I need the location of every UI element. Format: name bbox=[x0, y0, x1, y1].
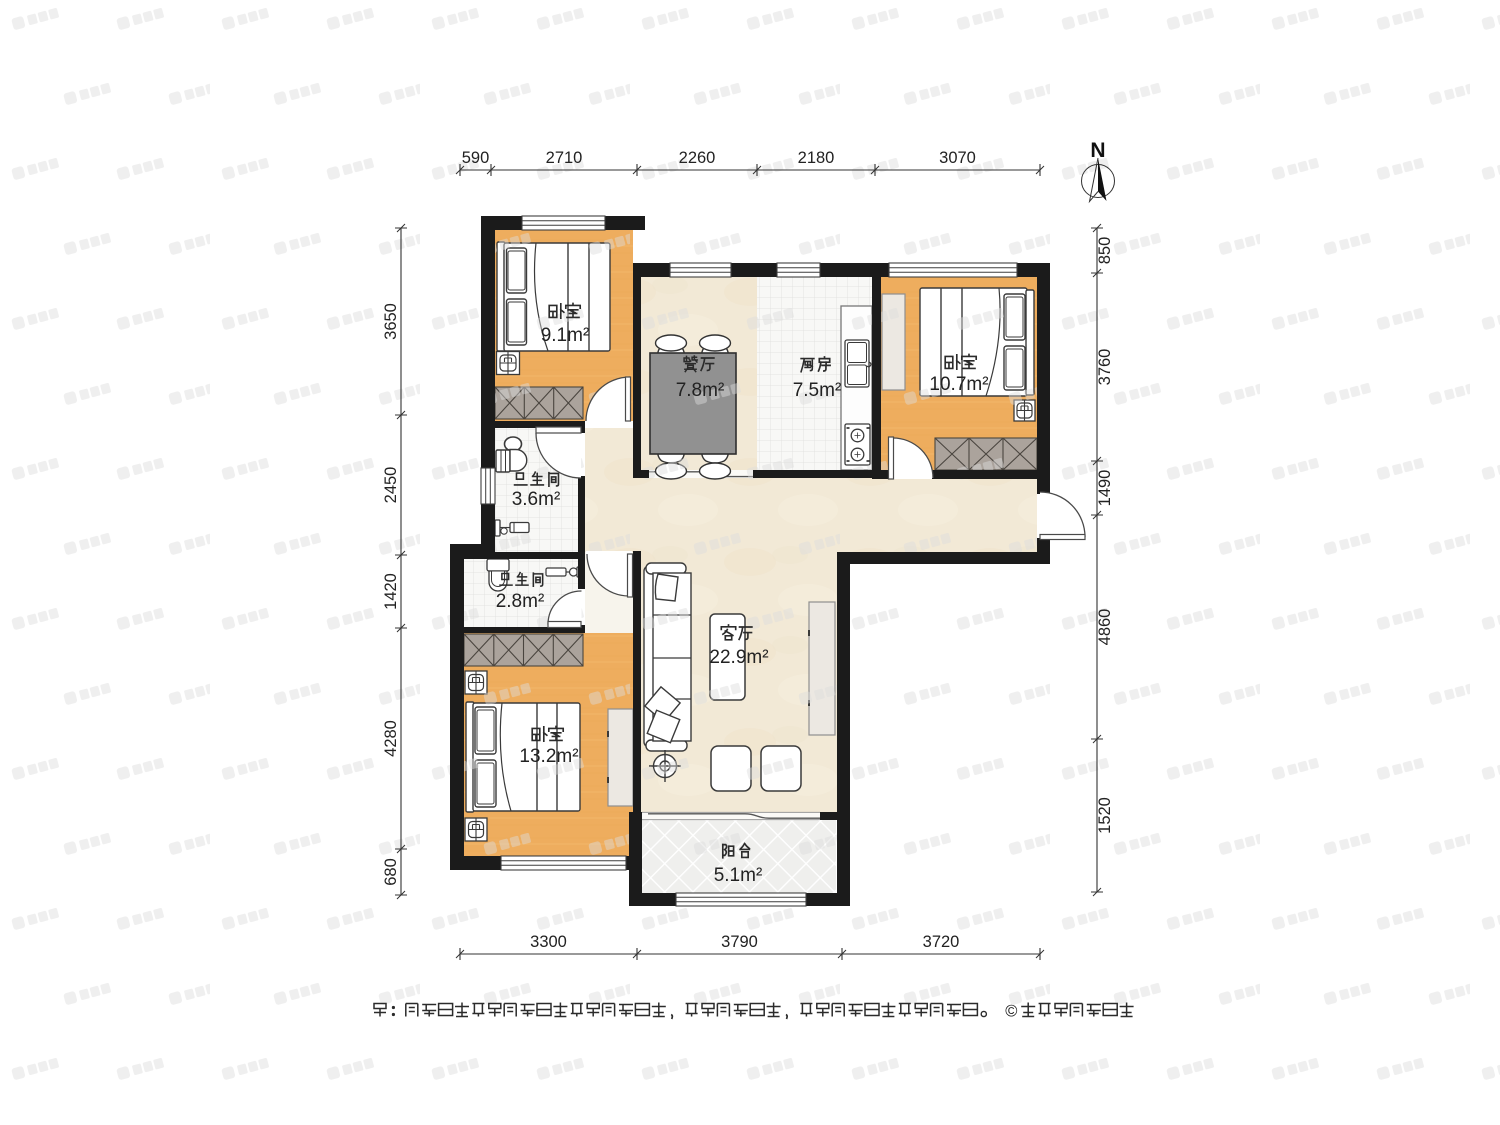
svg-text:22.9m²: 22.9m² bbox=[709, 647, 768, 668]
svg-text:3300: 3300 bbox=[530, 933, 567, 951]
svg-text:1490: 1490 bbox=[1096, 470, 1114, 507]
svg-text:1520: 1520 bbox=[1096, 797, 1114, 834]
svg-text:2710: 2710 bbox=[546, 149, 583, 167]
svg-text:4280: 4280 bbox=[382, 720, 400, 757]
svg-text:7.8m²: 7.8m² bbox=[676, 380, 725, 401]
svg-text:2260: 2260 bbox=[679, 149, 716, 167]
svg-text:7.5m²: 7.5m² bbox=[793, 380, 842, 401]
svg-text:3650: 3650 bbox=[382, 303, 400, 340]
svg-text:2450: 2450 bbox=[382, 467, 400, 504]
svg-text:13.2m²: 13.2m² bbox=[519, 746, 578, 767]
svg-text:680: 680 bbox=[382, 858, 400, 886]
svg-text:2.8m²: 2.8m² bbox=[496, 591, 545, 612]
svg-text:©: © bbox=[1005, 1003, 1017, 1021]
svg-text:4860: 4860 bbox=[1096, 609, 1114, 646]
svg-text:3790: 3790 bbox=[721, 933, 758, 951]
svg-text:9.1m²: 9.1m² bbox=[541, 325, 590, 346]
svg-text:3.6m²: 3.6m² bbox=[512, 489, 561, 510]
svg-text:1420: 1420 bbox=[382, 573, 400, 610]
svg-text:3720: 3720 bbox=[923, 933, 960, 951]
svg-text:10.7m²: 10.7m² bbox=[929, 374, 988, 395]
svg-text:3070: 3070 bbox=[939, 149, 976, 167]
svg-text:850: 850 bbox=[1096, 237, 1114, 265]
svg-text:590: 590 bbox=[462, 149, 490, 167]
svg-text:5.1m²: 5.1m² bbox=[714, 865, 763, 886]
svg-text:3760: 3760 bbox=[1096, 349, 1114, 386]
svg-text:2180: 2180 bbox=[798, 149, 835, 167]
